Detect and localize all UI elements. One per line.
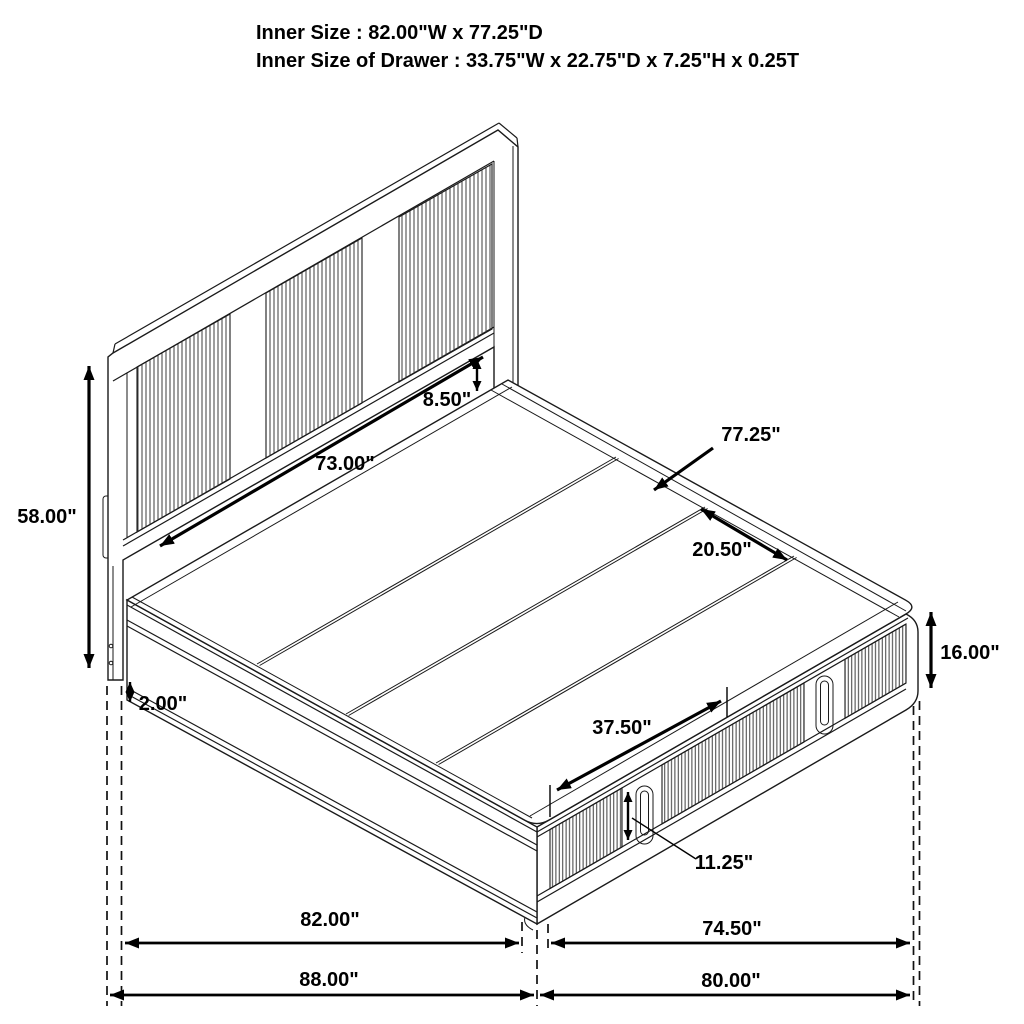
dim-label: 80.00" (701, 970, 761, 992)
dim-overall-width-88: 88.00" (110, 969, 534, 995)
dim-headboard-height: 58.00" (17, 366, 89, 668)
dim-label: 8.50" (423, 389, 471, 411)
dim-label: 20.50" (692, 539, 752, 561)
dim-label: 58.00" (17, 506, 77, 528)
dim-overall-depth-80: 80.00" (540, 970, 910, 995)
title-line-1: Inner Size : 82.00"W x 77.25"D (256, 22, 543, 44)
dim-label: 11.25" (695, 852, 753, 874)
title-block: Inner Size : 82.00"W x 77.25"D Inner Siz… (256, 22, 799, 72)
dim-footboard-height: 16.00" (931, 612, 1000, 688)
dim-label: 74.50" (702, 918, 762, 940)
dim-inner-width-82: 82.00" (125, 909, 519, 943)
dim-label: 2.00" (139, 693, 187, 715)
bed-dimension-diagram: 58.00" 2.00" 73.00" 8.50" 77.25" 20.50" … (0, 0, 1024, 1024)
dim-label: 73.00" (315, 453, 375, 475)
bed-dimension-diagram-page: 58.00" 2.00" 73.00" 8.50" 77.25" 20.50" … (0, 0, 1024, 1024)
dim-label: 37.50" (592, 717, 652, 739)
dim-label: 77.25" (721, 424, 781, 446)
dim-label: 82.00" (300, 909, 360, 931)
dim-label: 16.00" (940, 642, 1000, 664)
dim-depth-inner-74: 74.50" (551, 918, 910, 943)
dim-label: 88.00" (299, 969, 359, 991)
title-line-2: Inner Size of Drawer : 33.75"W x 22.75"D… (256, 50, 799, 72)
